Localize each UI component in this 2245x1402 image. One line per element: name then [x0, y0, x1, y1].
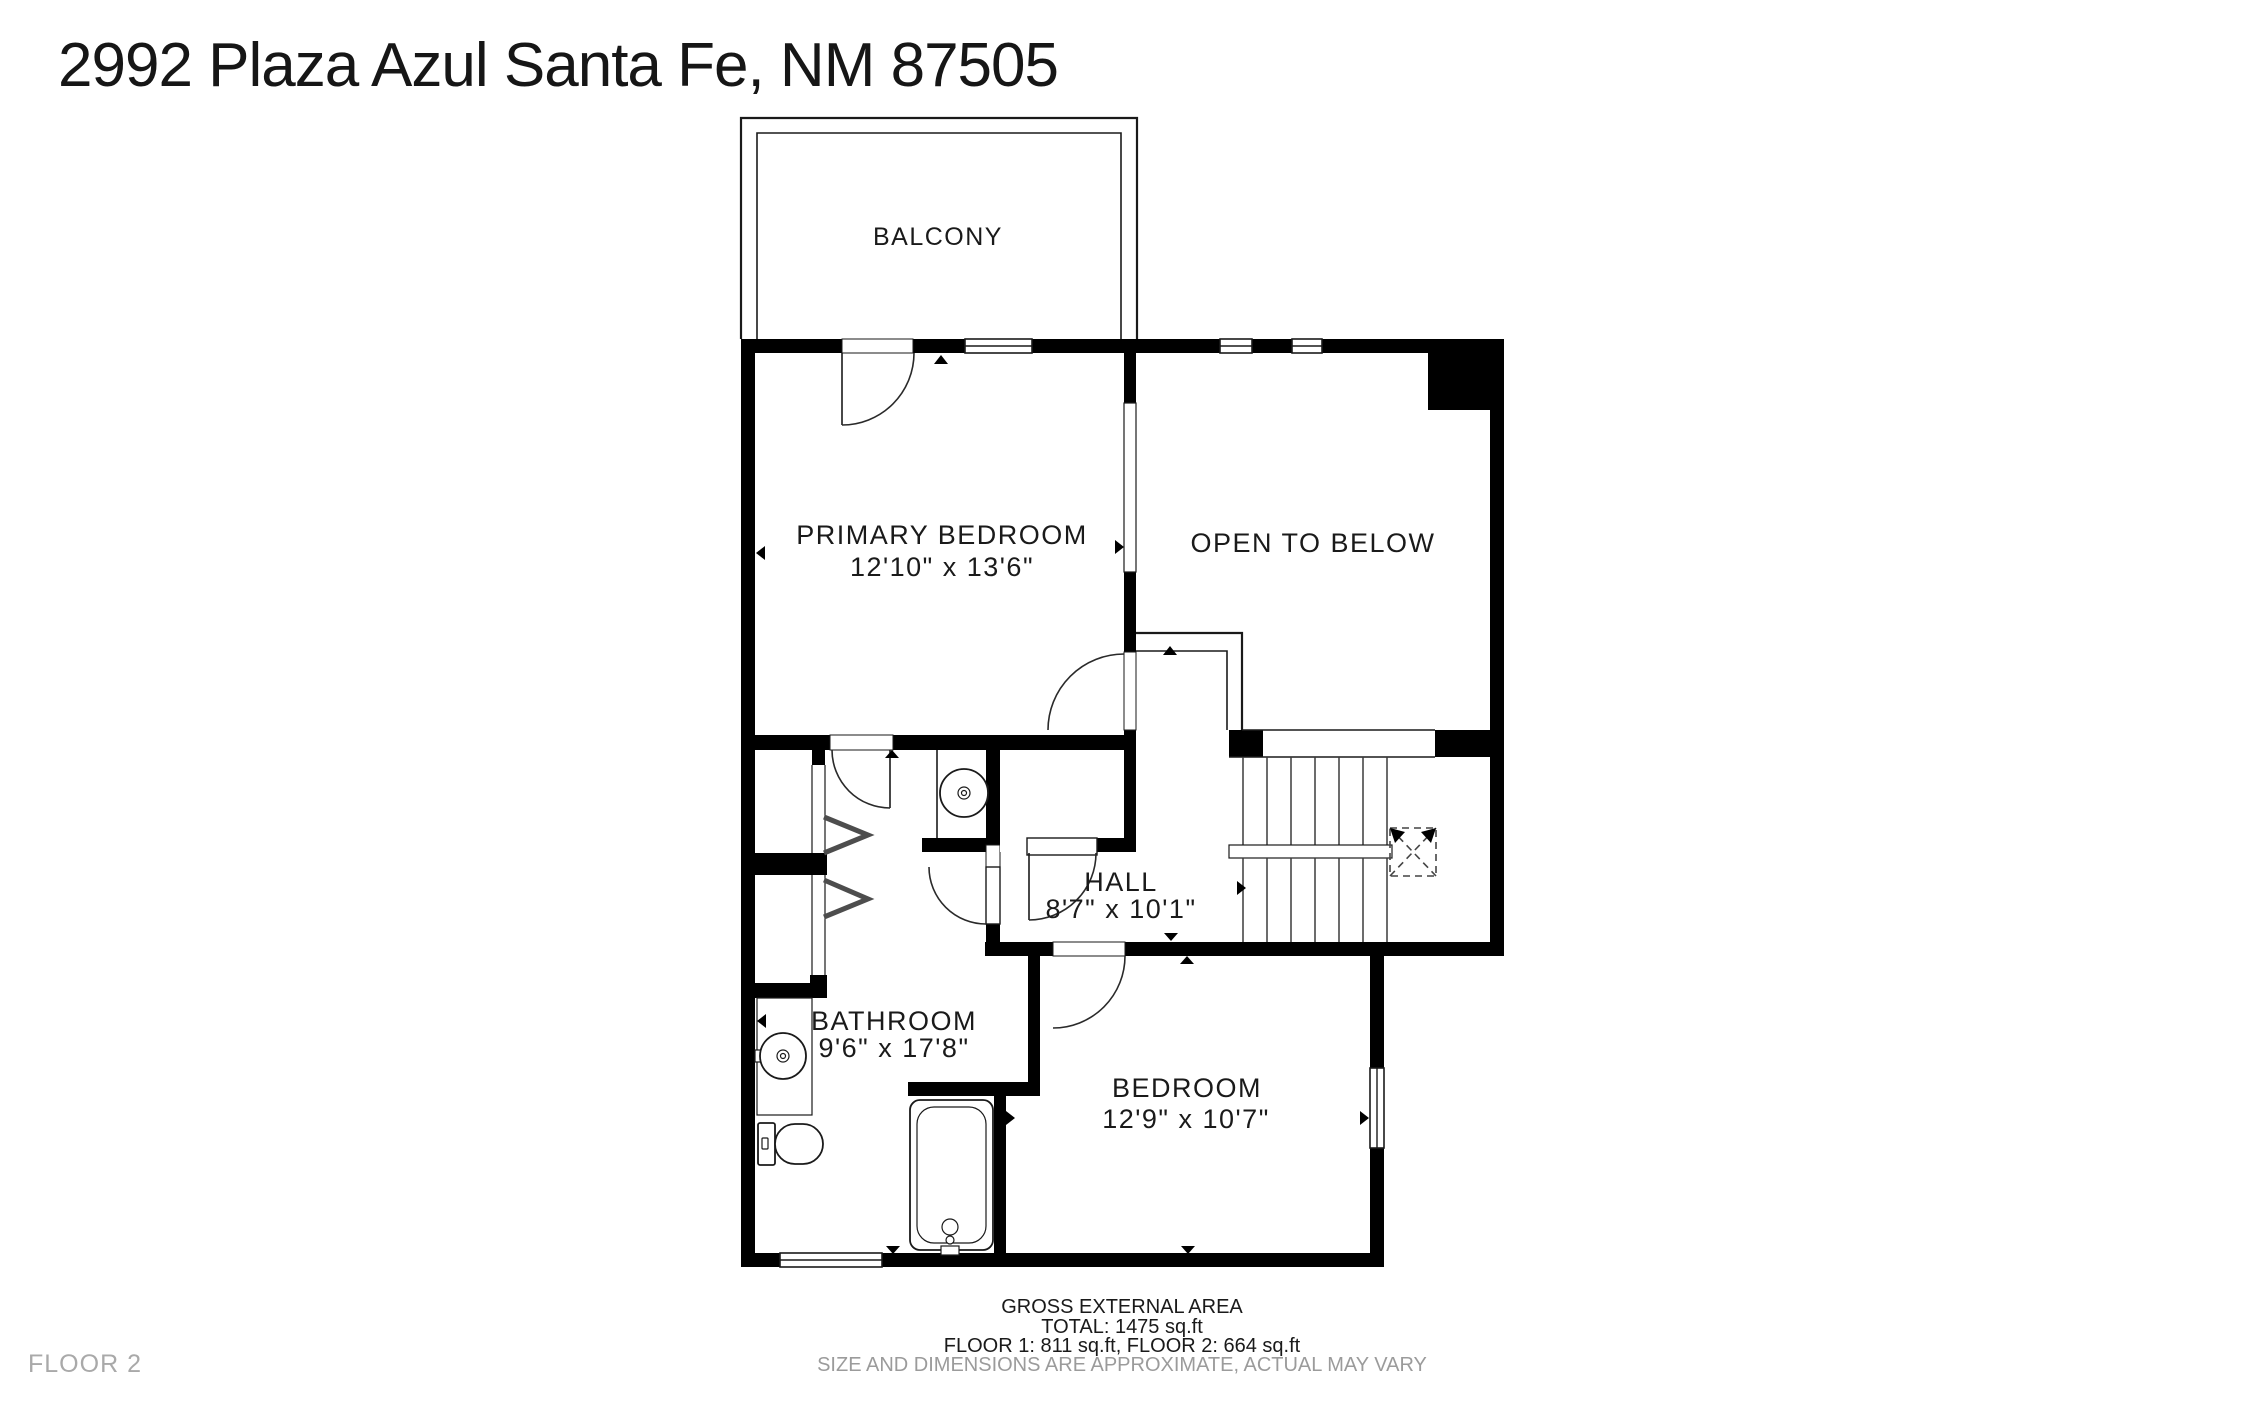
window: [780, 1253, 882, 1267]
stair-treads-lower: [1243, 858, 1387, 942]
page-title: 2992 Plaza Azul Santa Fe, NM 87505: [58, 31, 1058, 100]
stair-treads-upper: [1243, 757, 1387, 845]
interior-opening: [1124, 403, 1136, 572]
closet-door-chevron: [824, 817, 868, 853]
window: [1220, 339, 1252, 353]
primary-bedroom-label: PRIMARY BEDROOM: [796, 520, 1088, 550]
floor-plan-page: 2992 Plaza Azul Santa Fe, NM 87505: [0, 0, 2245, 1402]
room-labels: BALCONY PRIMARY BEDROOM 12'10" x 13'6" O…: [796, 223, 1435, 1134]
vanity-sink: [755, 998, 812, 1115]
railing: [1136, 633, 1242, 730]
bathroom-label: BATHROOM: [811, 1006, 977, 1036]
bathroom-dims: 9'6" x 17'8": [818, 1033, 969, 1063]
windows: [780, 339, 1384, 1267]
primary-bedroom-dims: 12'10" x 13'6": [850, 552, 1034, 582]
closet-door-chevron: [824, 880, 868, 917]
fixtures: [755, 750, 993, 1255]
toilet: [758, 1123, 823, 1165]
direction-markers: [756, 355, 1369, 1254]
bathtub: [910, 1100, 993, 1255]
primary-bedroom-door: [1048, 652, 1136, 730]
bedroom-door: [1053, 942, 1125, 1028]
disclaimer: SIZE AND DIMENSIONS ARE APPROXIMATE, ACT…: [817, 1354, 1427, 1376]
bathroom-door: [830, 735, 893, 808]
balcony-label: BALCONY: [873, 223, 1003, 251]
gross-area-title: GROSS EXTERNAL AREA: [1001, 1296, 1243, 1318]
balcony-door: [842, 339, 914, 425]
hall-label: HALL: [1084, 867, 1158, 897]
bedroom-label: BEDROOM: [1112, 1073, 1262, 1103]
footer: GROSS EXTERNAL AREA TOTAL: 1475 sq.ft FL…: [28, 1296, 1427, 1378]
open-to-below-label: OPEN TO BELOW: [1190, 528, 1435, 558]
floor-number-label: FLOOR 2: [28, 1350, 142, 1378]
hall-dims: 8'7" x 10'1": [1045, 894, 1196, 924]
window: [1370, 1068, 1384, 1148]
stair-stringer: [1229, 845, 1392, 858]
window: [965, 339, 1032, 353]
hall-bathroom-door: [929, 845, 1000, 924]
stair-direction-box: [1390, 828, 1436, 876]
doors: [830, 339, 1136, 1028]
bedroom-dims: 12'9" x 10'7": [1102, 1104, 1270, 1134]
window: [1292, 339, 1322, 353]
stairs: [1229, 730, 1436, 942]
wc-sink: [940, 769, 988, 817]
